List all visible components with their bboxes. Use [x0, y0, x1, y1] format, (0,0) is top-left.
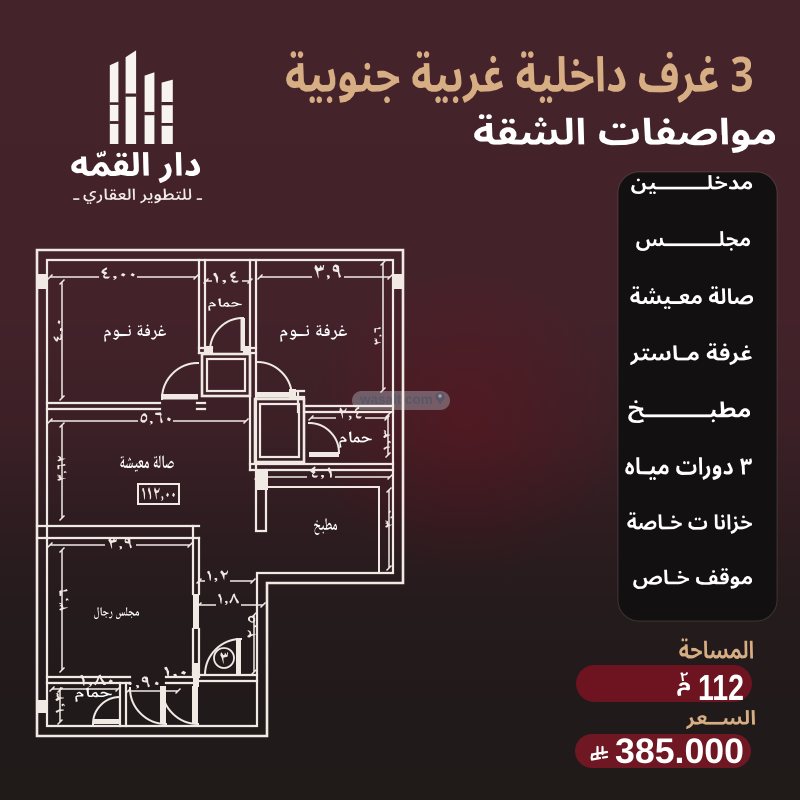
svg-text:385.000: 385.000: [615, 732, 744, 771]
svg-text:112: 112: [698, 667, 744, 708]
svg-text:wasalt.com: wasalt.com: [359, 392, 433, 407]
